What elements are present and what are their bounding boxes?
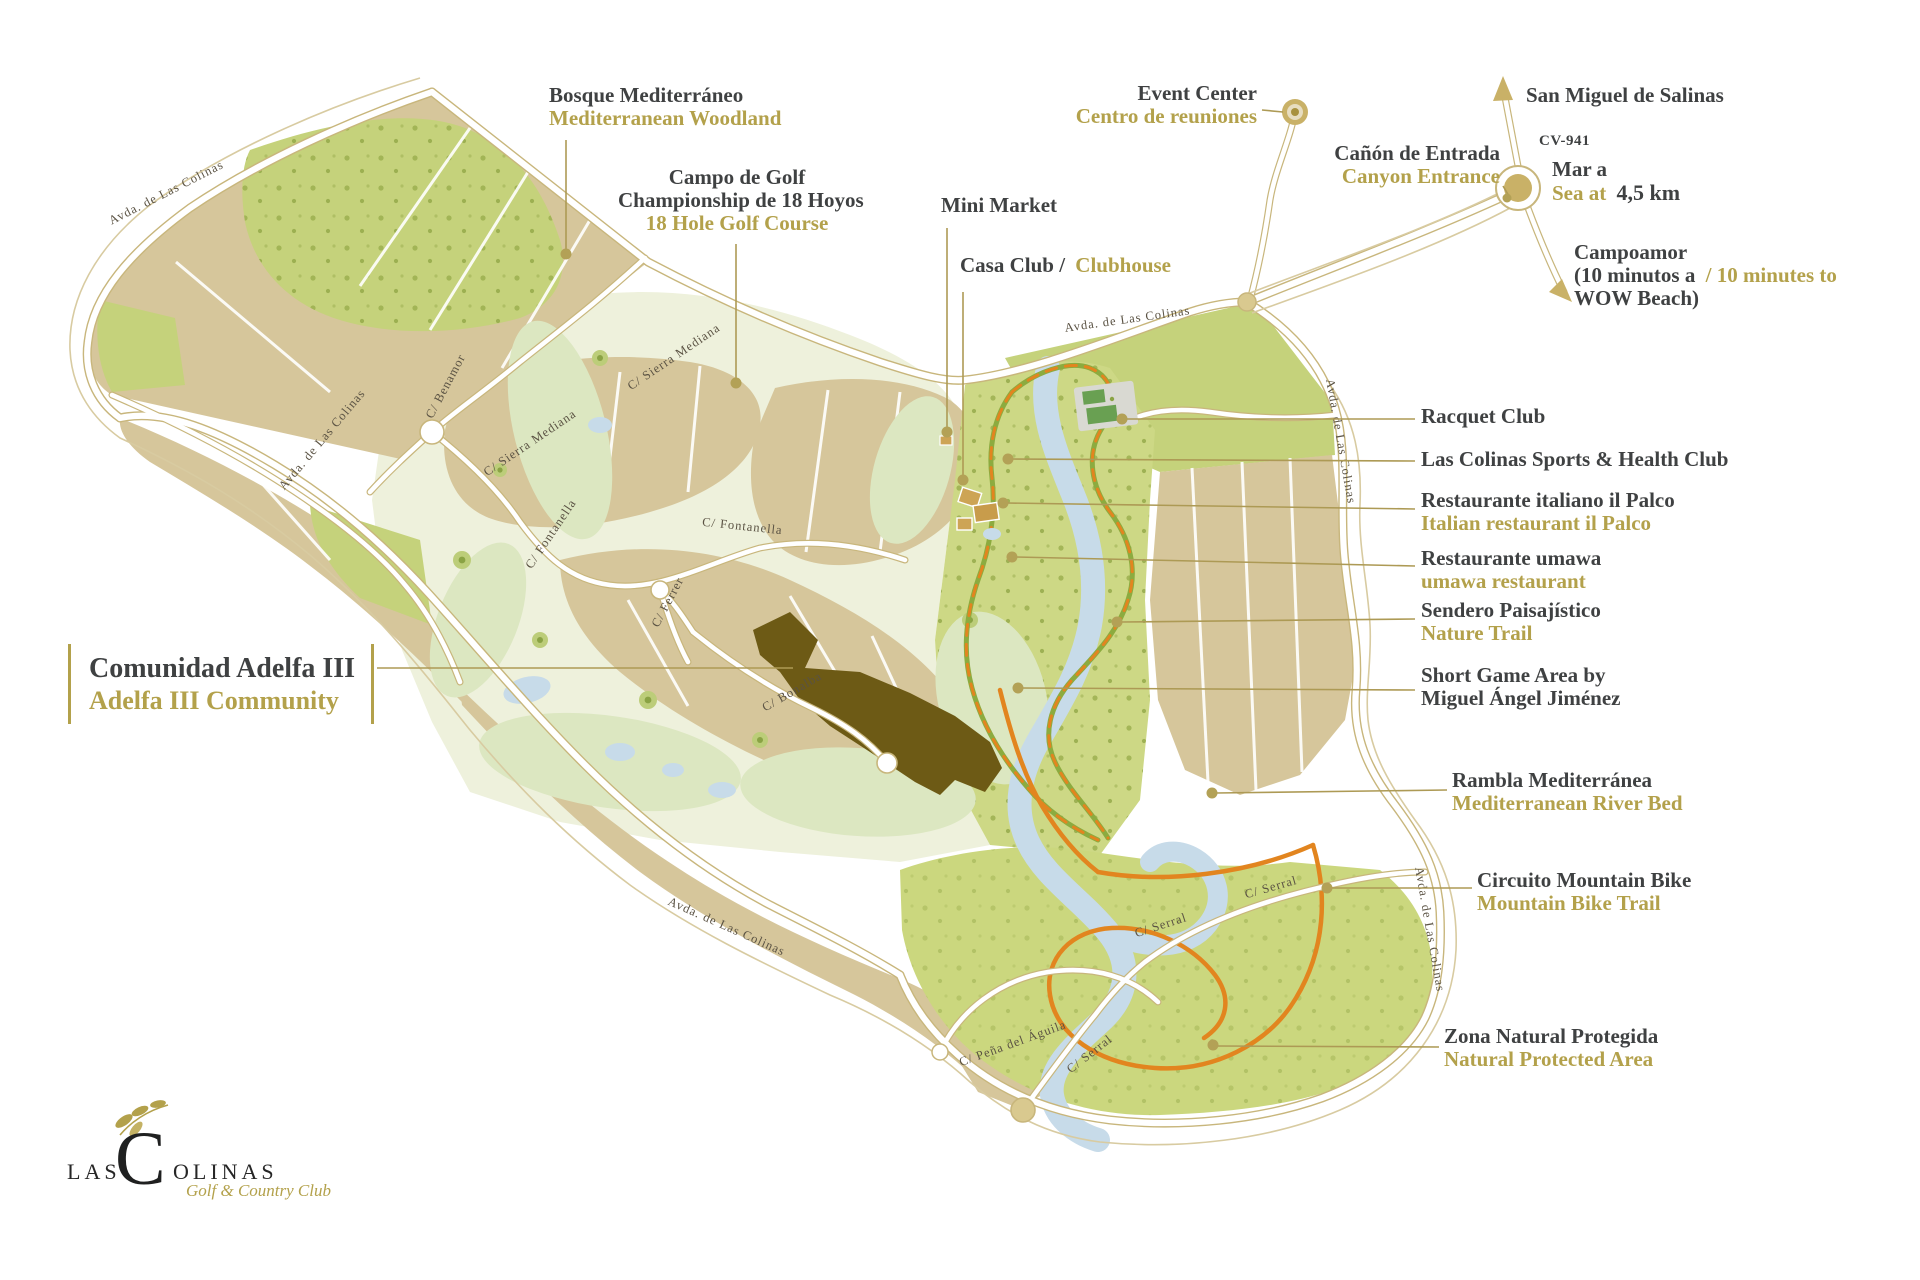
callout-short-game: Short Game Area by Miguel Ángel Jiménez	[1421, 664, 1620, 710]
callout-sendero-primary: Sendero Paisajístico	[1421, 599, 1601, 622]
logo-initial: C	[115, 1123, 166, 1195]
logo-tagline: Golf & Country Club	[186, 1181, 331, 1201]
callout-sea-secondary: Sea at	[1552, 181, 1606, 205]
callout-campoamor: Campoamor (10 minutos a / 10 minutes to …	[1574, 241, 1837, 310]
callout-casa-club-primary: Casa Club /	[960, 253, 1065, 277]
callout-zona-secondary: Natural Protected Area	[1444, 1048, 1658, 1071]
callout-umawa-primary: Restaurante umawa	[1421, 547, 1601, 570]
callout-short-game-line2: Miguel Ángel Jiménez	[1421, 687, 1620, 710]
callout-umawa-secondary: umawa restaurant	[1421, 570, 1601, 593]
callout-campoamor-line3: WOW Beach)	[1574, 287, 1837, 310]
callout-campoamor-line1: Campoamor	[1574, 241, 1837, 264]
callout-mtb-primary: Circuito Mountain Bike	[1477, 869, 1691, 892]
arrow-san-miguel	[1493, 76, 1513, 101]
callout-event-center: Event Center Centro de reuniones	[1035, 82, 1257, 128]
callout-rambla: Rambla Mediterránea Mediterranean River …	[1452, 769, 1683, 815]
callout-cv941: CV-941	[1539, 130, 1590, 153]
callout-canyon-secondary: Canyon Entrance	[1284, 165, 1500, 188]
callout-event-center-secondary: Centro de reuniones	[1035, 105, 1257, 128]
callout-rambla-secondary: Mediterranean River Bed	[1452, 792, 1683, 815]
callout-sendero: Sendero Paisajístico Nature Trail	[1421, 599, 1601, 645]
racquet-club-courts	[1074, 381, 1139, 432]
callout-short-game-line1: Short Game Area by	[1421, 664, 1620, 687]
las-colinas-logo: LAS C OLINAS Golf & Country Club	[62, 1095, 352, 1225]
callout-racquet: Racquet Club	[1421, 405, 1545, 428]
callout-sea-distance: 4,5 km	[1617, 180, 1681, 205]
callout-campoamor-line2-dark: (10 minutos a	[1574, 263, 1695, 287]
callout-canyon-primary: Cañón de Entrada	[1284, 142, 1500, 165]
callout-sea-primary: Mar a	[1552, 158, 1680, 181]
featured-secondary: Adelfa III Community	[89, 686, 355, 716]
arrow-campoamor	[1549, 279, 1572, 302]
callout-rambla-primary: Rambla Mediterránea	[1452, 769, 1683, 792]
callout-zona-primary: Zona Natural Protegida	[1444, 1025, 1658, 1048]
callout-racquet-primary: Racquet Club	[1421, 405, 1545, 428]
callout-sports-club-primary: Las Colinas Sports & Health Club	[1421, 448, 1728, 471]
callout-campo-line1: Campo de Golf	[618, 166, 856, 189]
callout-san-miguel-primary: San Miguel de Salinas	[1526, 84, 1724, 107]
callout-sports-club: Las Colinas Sports & Health Club	[1421, 448, 1728, 471]
callout-bosque-primary: Bosque Mediterráneo	[549, 84, 781, 107]
callout-campo-secondary: 18 Hole Golf Course	[618, 212, 856, 235]
callout-casa-club: Casa Club / Clubhouse	[960, 254, 1171, 277]
callout-campo: Campo de Golf Championship de 18 Hoyos 1…	[618, 166, 856, 235]
callout-bosque: Bosque Mediterráneo Mediterranean Woodla…	[549, 84, 781, 130]
callout-campo-line2: Championship de 18 Hoyos	[618, 189, 856, 212]
featured-primary: Comunidad Adelfa III	[89, 652, 355, 686]
entrance-roundabout	[1496, 166, 1540, 210]
callout-umawa: Restaurante umawa umawa restaurant	[1421, 547, 1601, 593]
callout-il-palco-secondary: Italian restaurant il Palco	[1421, 512, 1675, 535]
callout-event-center-primary: Event Center	[1035, 82, 1257, 105]
callout-mini-market-primary: Mini Market	[941, 194, 1057, 217]
callout-mini-market: Mini Market	[941, 194, 1057, 217]
callout-canyon: Cañón de Entrada Canyon Entrance	[1284, 142, 1500, 188]
callout-sea: Mar a Sea at 4,5 km	[1552, 158, 1680, 205]
featured-community-label: Comunidad Adelfa III Adelfa III Communit…	[68, 644, 374, 724]
callout-il-palco: Restaurante italiano il Palco Italian re…	[1421, 489, 1675, 535]
callout-san-miguel: San Miguel de Salinas	[1526, 84, 1724, 107]
logo-prefix: LAS	[67, 1159, 121, 1185]
callout-bosque-secondary: Mediterranean Woodland	[549, 107, 781, 130]
callout-mtb: Circuito Mountain Bike Mountain Bike Tra…	[1477, 869, 1691, 915]
event-center-marker	[1282, 99, 1308, 125]
callout-cv941-text: CV-941	[1539, 130, 1590, 153]
callout-campoamor-line2-gold: / 10 minutes to	[1706, 263, 1837, 287]
callout-il-palco-primary: Restaurante italiano il Palco	[1421, 489, 1675, 512]
featured-right-bar	[371, 644, 374, 724]
resort-map: Avda. de Las Colinas Avda. de Las Colina…	[0, 0, 1920, 1280]
callout-mtb-secondary: Mountain Bike Trail	[1477, 892, 1691, 915]
callout-casa-club-secondary: Clubhouse	[1075, 253, 1171, 277]
callout-zona: Zona Natural Protegida Natural Protected…	[1444, 1025, 1658, 1071]
callout-sendero-secondary: Nature Trail	[1421, 622, 1601, 645]
